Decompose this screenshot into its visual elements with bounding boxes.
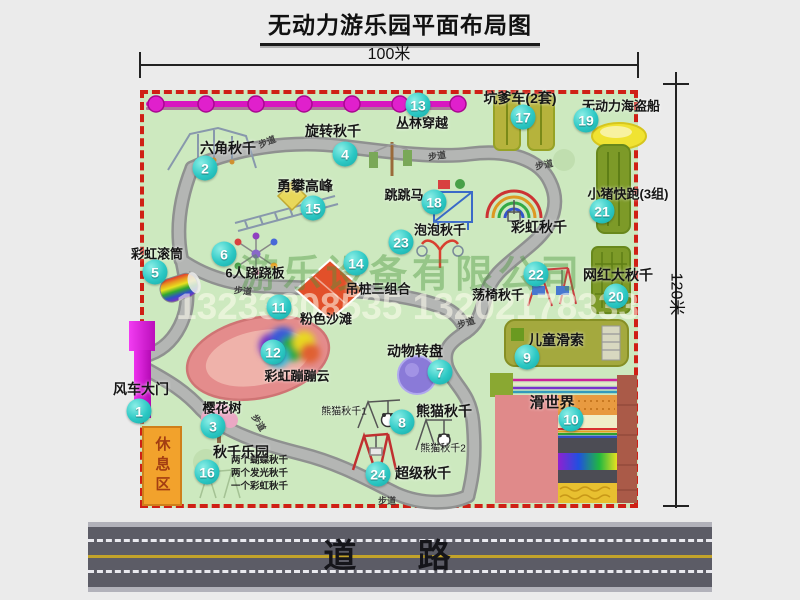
poi-number-5: 5 (143, 260, 168, 285)
poi-number-4: 4 (333, 142, 358, 167)
windmill-gate-icon (129, 321, 155, 351)
road: 道 路 (88, 522, 712, 592)
dimension-tick (663, 505, 689, 507)
swing-note: 两个发光秋千 (231, 467, 288, 480)
poi-number-3: 3 (201, 414, 226, 439)
height-dimension-label: 120米 (666, 273, 690, 316)
poi-number-20: 20 (604, 284, 629, 309)
footpath-label: 步道 (534, 156, 554, 172)
poi-label-11: 粉色沙滩 (300, 309, 352, 328)
poi-label-1: 风车大门 (113, 379, 169, 399)
poi-label-22: 荡椅秋千 (472, 285, 524, 304)
map-overlay: 游乐设备有限公司 13233808535 13202178333 休息区 彩虹秋… (140, 90, 638, 508)
poi-label-18: 跳跳马 (384, 185, 423, 204)
poi-label-12: 彩虹蹦蹦云 (264, 366, 329, 385)
footpath-label: 步道 (427, 148, 447, 163)
label-rainbow-swing: 彩虹秋千 (511, 217, 567, 237)
poi-label-4: 旋转秋千 (305, 121, 361, 141)
poi-number-14: 14 (344, 251, 369, 276)
poi-number-16: 16 (195, 460, 220, 485)
footpath-label: 步道 (233, 283, 252, 298)
poi-label-24: 超级秋千 (395, 463, 451, 483)
poi-label-16: 秋千乐园 (213, 442, 269, 462)
park-map: 游乐设备有限公司 13233808535 13202178333 休息区 彩虹秋… (140, 90, 638, 508)
dimension-tick (663, 83, 689, 85)
poi-number-13: 13 (406, 93, 431, 118)
poi-number-6: 6 (212, 242, 237, 267)
label-panda-swing-1: 熊猫秋千1 (321, 403, 367, 418)
label-panda-swing-2: 熊猫秋千2 (420, 440, 466, 455)
width-dimension-line (140, 64, 638, 66)
poi-number-7: 7 (428, 360, 453, 385)
dimension-tick (139, 52, 141, 78)
footpath-label: 步道 (249, 411, 270, 433)
poi-number-9: 9 (515, 345, 540, 370)
poi-number-24: 24 (366, 462, 391, 487)
poi-number-17: 17 (511, 105, 536, 130)
poi-number-8: 8 (390, 410, 415, 435)
poi-number-22: 22 (524, 262, 549, 287)
poi-number-10: 10 (559, 407, 584, 432)
rest-area-label: 休息区 (152, 436, 173, 496)
page: 无动力游乐园平面布局图 100米 120米 (0, 0, 800, 600)
poi-label-7: 动物转盘 (387, 341, 443, 361)
poi-number-2: 2 (193, 156, 218, 181)
footpath-label: 步道 (256, 132, 278, 151)
poi-number-11: 11 (267, 295, 292, 320)
road-label: 道 路 (88, 527, 712, 587)
poi-number-15: 15 (301, 196, 326, 221)
poi-number-18: 18 (422, 190, 447, 215)
poi-label-14: 吊桩三组合 (345, 279, 410, 298)
width-dimension-label: 100米 (140, 40, 638, 64)
swing-note: 一个彩虹秋千 (231, 480, 288, 493)
poi-number-23: 23 (389, 230, 414, 255)
rest-area: 休息区 (142, 426, 182, 506)
poi-label-20: 网红大秋千 (583, 265, 653, 285)
footpath-label: 步道 (378, 494, 396, 507)
poi-label-23: 泡泡秋千 (414, 220, 466, 239)
dimension-tick (637, 52, 639, 78)
poi-number-21: 21 (590, 199, 615, 224)
poi-label-15: 勇攀高峰 (277, 176, 333, 196)
poi-number-12: 12 (261, 340, 286, 365)
poi-number-1: 1 (127, 399, 152, 424)
poi-number-19: 19 (574, 108, 599, 133)
poi-label-9: 儿童滑索 (528, 330, 584, 350)
poi-label-8: 熊猫秋千 (416, 401, 472, 421)
poi-label-6: 6人跷跷板 (225, 263, 284, 282)
